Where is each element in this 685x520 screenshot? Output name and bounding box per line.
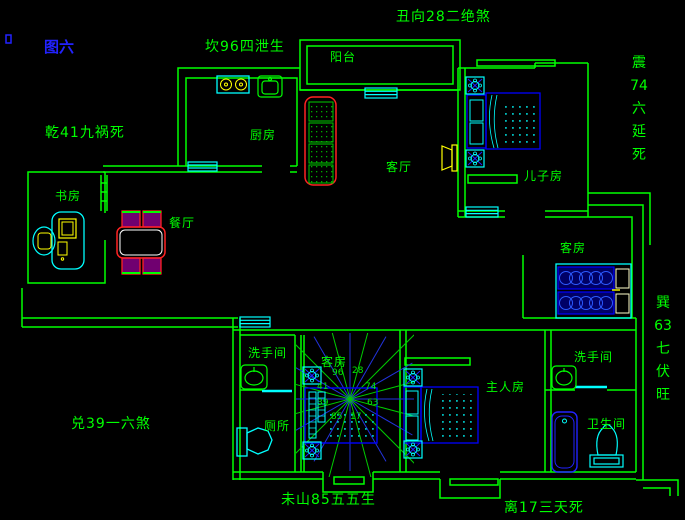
wall-balcony-inner — [307, 46, 453, 84]
pillow — [616, 294, 629, 313]
compass-number: 17 — [350, 413, 361, 422]
study-keyboard — [58, 242, 67, 255]
room-label-sons-room: 儿子房 — [524, 167, 563, 184]
room-label-guest-east: 客房 — [560, 239, 586, 256]
pillow — [470, 100, 483, 121]
perimeter-label-south-right: 离17三天死 — [504, 497, 584, 517]
sink-washroom-right — [552, 366, 576, 389]
perimeter-label-southeast: 巽 63 七 伏 旺 — [651, 292, 675, 407]
compass-number: 85 — [331, 413, 342, 422]
compass-number: 41 — [317, 383, 328, 392]
window-sons-room — [466, 207, 498, 217]
perimeter-label-gate: 丑向28二绝煞 — [396, 6, 491, 26]
compass-number: 63 — [367, 399, 378, 408]
pillow — [406, 391, 418, 414]
bathtub — [552, 412, 577, 472]
perimeter-label-south-center: 未山85五五生 — [281, 489, 376, 509]
room-label-washroom-right: 洗手间 — [574, 348, 613, 365]
wall-balcony-outer — [300, 40, 460, 90]
nightstand-lamp — [404, 369, 422, 386]
wall-speaker — [442, 145, 457, 171]
wall-master-bath-divider — [545, 330, 551, 472]
figure-title: 图六 — [44, 36, 74, 57]
guest-beds — [556, 264, 631, 318]
compass-number: 96 — [332, 369, 343, 378]
shelf-sons-room — [468, 175, 517, 183]
dining-table — [117, 227, 165, 258]
compass-number: 28 — [352, 367, 363, 376]
room-label-living: 客厅 — [386, 158, 412, 175]
perimeter-label-north: 坎96四泄生 — [205, 36, 285, 56]
study-chair-seat — [38, 233, 51, 249]
perimeter-label-east: 震 74 六 延 死 — [627, 52, 651, 167]
room-label-balcony: 阳台 — [330, 48, 356, 65]
compass-number: 74 — [365, 383, 376, 392]
door-threshold-a — [334, 477, 364, 484]
room-label-study: 书房 — [55, 187, 81, 204]
room-label-bathroom: 卫生间 — [587, 415, 626, 432]
room-label-dining: 餐厅 — [169, 214, 195, 231]
perimeter-label-northwest: 乾41九祸死 — [45, 122, 125, 142]
cad-artifact — [6, 35, 11, 43]
study-desk — [33, 212, 84, 269]
nightstand-lamp — [466, 150, 484, 167]
sink-washroom-left — [241, 365, 267, 389]
column-lamp — [303, 442, 321, 459]
window-corridor — [240, 317, 270, 327]
pillow — [616, 269, 629, 288]
room-label-kitchen: 厨房 — [250, 126, 276, 143]
wall-corridor — [22, 318, 238, 327]
kitchen-sink — [258, 76, 282, 97]
room-label-washroom-left: 洗手间 — [248, 344, 287, 361]
pillow — [406, 416, 418, 440]
nightstand-lamp — [466, 77, 484, 94]
shelf-master — [405, 358, 470, 365]
cad-floorplan-canvas: 图六 坎96四泄生 丑向28二绝煞 乾41九祸死 兑39一六煞 未山85五五生 … — [0, 0, 685, 520]
dining-chairs — [122, 211, 161, 274]
sofa — [305, 97, 336, 185]
pillow — [470, 123, 483, 144]
room-label-master: 主人房 — [486, 378, 525, 395]
compass-star — [255, 304, 444, 493]
door-threshold-b — [450, 479, 498, 485]
wall-bottomright-step — [636, 480, 678, 496]
floorplan-drawing — [0, 0, 685, 520]
wall-ne-corner-outer — [588, 193, 650, 245]
sons-bed — [467, 93, 540, 149]
master-bed — [404, 387, 478, 443]
room-label-toilet: 厕所 — [264, 417, 290, 434]
wall-east-outer — [588, 205, 643, 480]
wall-kitchen — [186, 78, 297, 166]
compass-number: 39 — [317, 399, 328, 408]
door-notch-b — [440, 479, 500, 498]
perimeter-label-west: 兑39一六煞 — [71, 413, 151, 433]
dining-set — [117, 211, 165, 274]
